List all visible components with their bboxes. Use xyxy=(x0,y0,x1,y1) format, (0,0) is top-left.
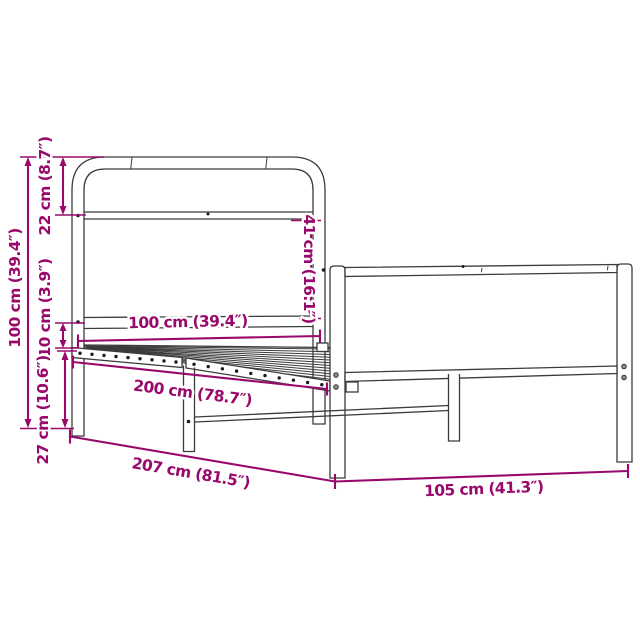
rivet-dot xyxy=(192,363,195,366)
footboard-near-post xyxy=(330,266,345,478)
center-leg-bolt xyxy=(187,420,191,424)
rivet-dot xyxy=(249,372,252,375)
dimension-line xyxy=(335,464,628,482)
dimension-headboard-top-section: 22 cm (8.7″) xyxy=(36,136,86,235)
footboard-center-leg xyxy=(449,374,460,441)
rivet-dot xyxy=(102,354,105,357)
dimension-overall-length: 207 cm (81.5″) xyxy=(70,430,335,492)
headboard-upper-rail xyxy=(84,212,313,219)
overall-width-label: 105 cm (41.3″) xyxy=(424,478,544,501)
rivet-dot xyxy=(221,367,224,370)
center-rail-bracket xyxy=(346,382,358,392)
diagram-canvas: 100 cm (39.4″) 22 cm (8.7″) 41 cm (16.1″… xyxy=(0,0,640,640)
overall-height-label: 100 cm (39.4″) xyxy=(6,228,24,347)
extension-lines xyxy=(55,323,85,348)
center-rail xyxy=(195,406,449,423)
dimension-under-bed-clearance: 27 cm (10.6″) xyxy=(34,351,77,465)
headboard-post-caps xyxy=(72,424,325,436)
rivet-dot xyxy=(114,355,117,358)
rivet-dot xyxy=(174,360,177,363)
slat-length-label: 200 cm (78.7″) xyxy=(132,377,253,410)
rivet-dot xyxy=(306,381,309,384)
dimension-overall-width: 105 cm (41.3″) xyxy=(335,464,628,500)
headboard-panel-label: 41 cm (16.1″) xyxy=(300,214,318,323)
rivet-dot xyxy=(235,369,238,372)
rivet-dot xyxy=(78,352,81,355)
footboard-top-rail xyxy=(345,265,617,277)
dimension-headboard-panel: 41 cm (16.1″) xyxy=(291,214,321,323)
rivet-dot xyxy=(263,374,266,377)
under-bed-clearance-label: 27 cm (10.6″) xyxy=(34,355,52,464)
rivet-dot xyxy=(138,357,141,360)
corner-bracket xyxy=(317,343,328,352)
rivet-dot xyxy=(320,383,323,386)
rivet-dot xyxy=(150,358,153,361)
headboard-tube-seams xyxy=(131,158,267,169)
rivet-dot xyxy=(292,379,295,382)
footboard-far-post xyxy=(617,264,632,462)
headboard-top-label: 22 cm (8.7″) xyxy=(36,136,54,235)
center-support-leg xyxy=(184,366,195,452)
bed-width-label: 100 cm (39.4″) xyxy=(128,312,248,332)
footboard-bottom-rail xyxy=(345,366,617,382)
rail-gap-label: 10 cm (3.9″) xyxy=(36,258,54,357)
overall-length-label: 207 cm (81.5″) xyxy=(130,454,251,492)
rivet-dot xyxy=(90,353,93,356)
rivet-dot xyxy=(278,376,281,379)
rivet-dot xyxy=(126,356,129,359)
headboard-bolt-dots xyxy=(76,213,325,324)
rivet-dot xyxy=(207,365,210,368)
bed-frame-dimension-diagram: 100 cm (39.4″) 22 cm (8.7″) 41 cm (16.1″… xyxy=(0,0,640,640)
rivet-dot xyxy=(162,359,165,362)
dimension-overall-height: 100 cm (39.4″) xyxy=(6,157,104,429)
